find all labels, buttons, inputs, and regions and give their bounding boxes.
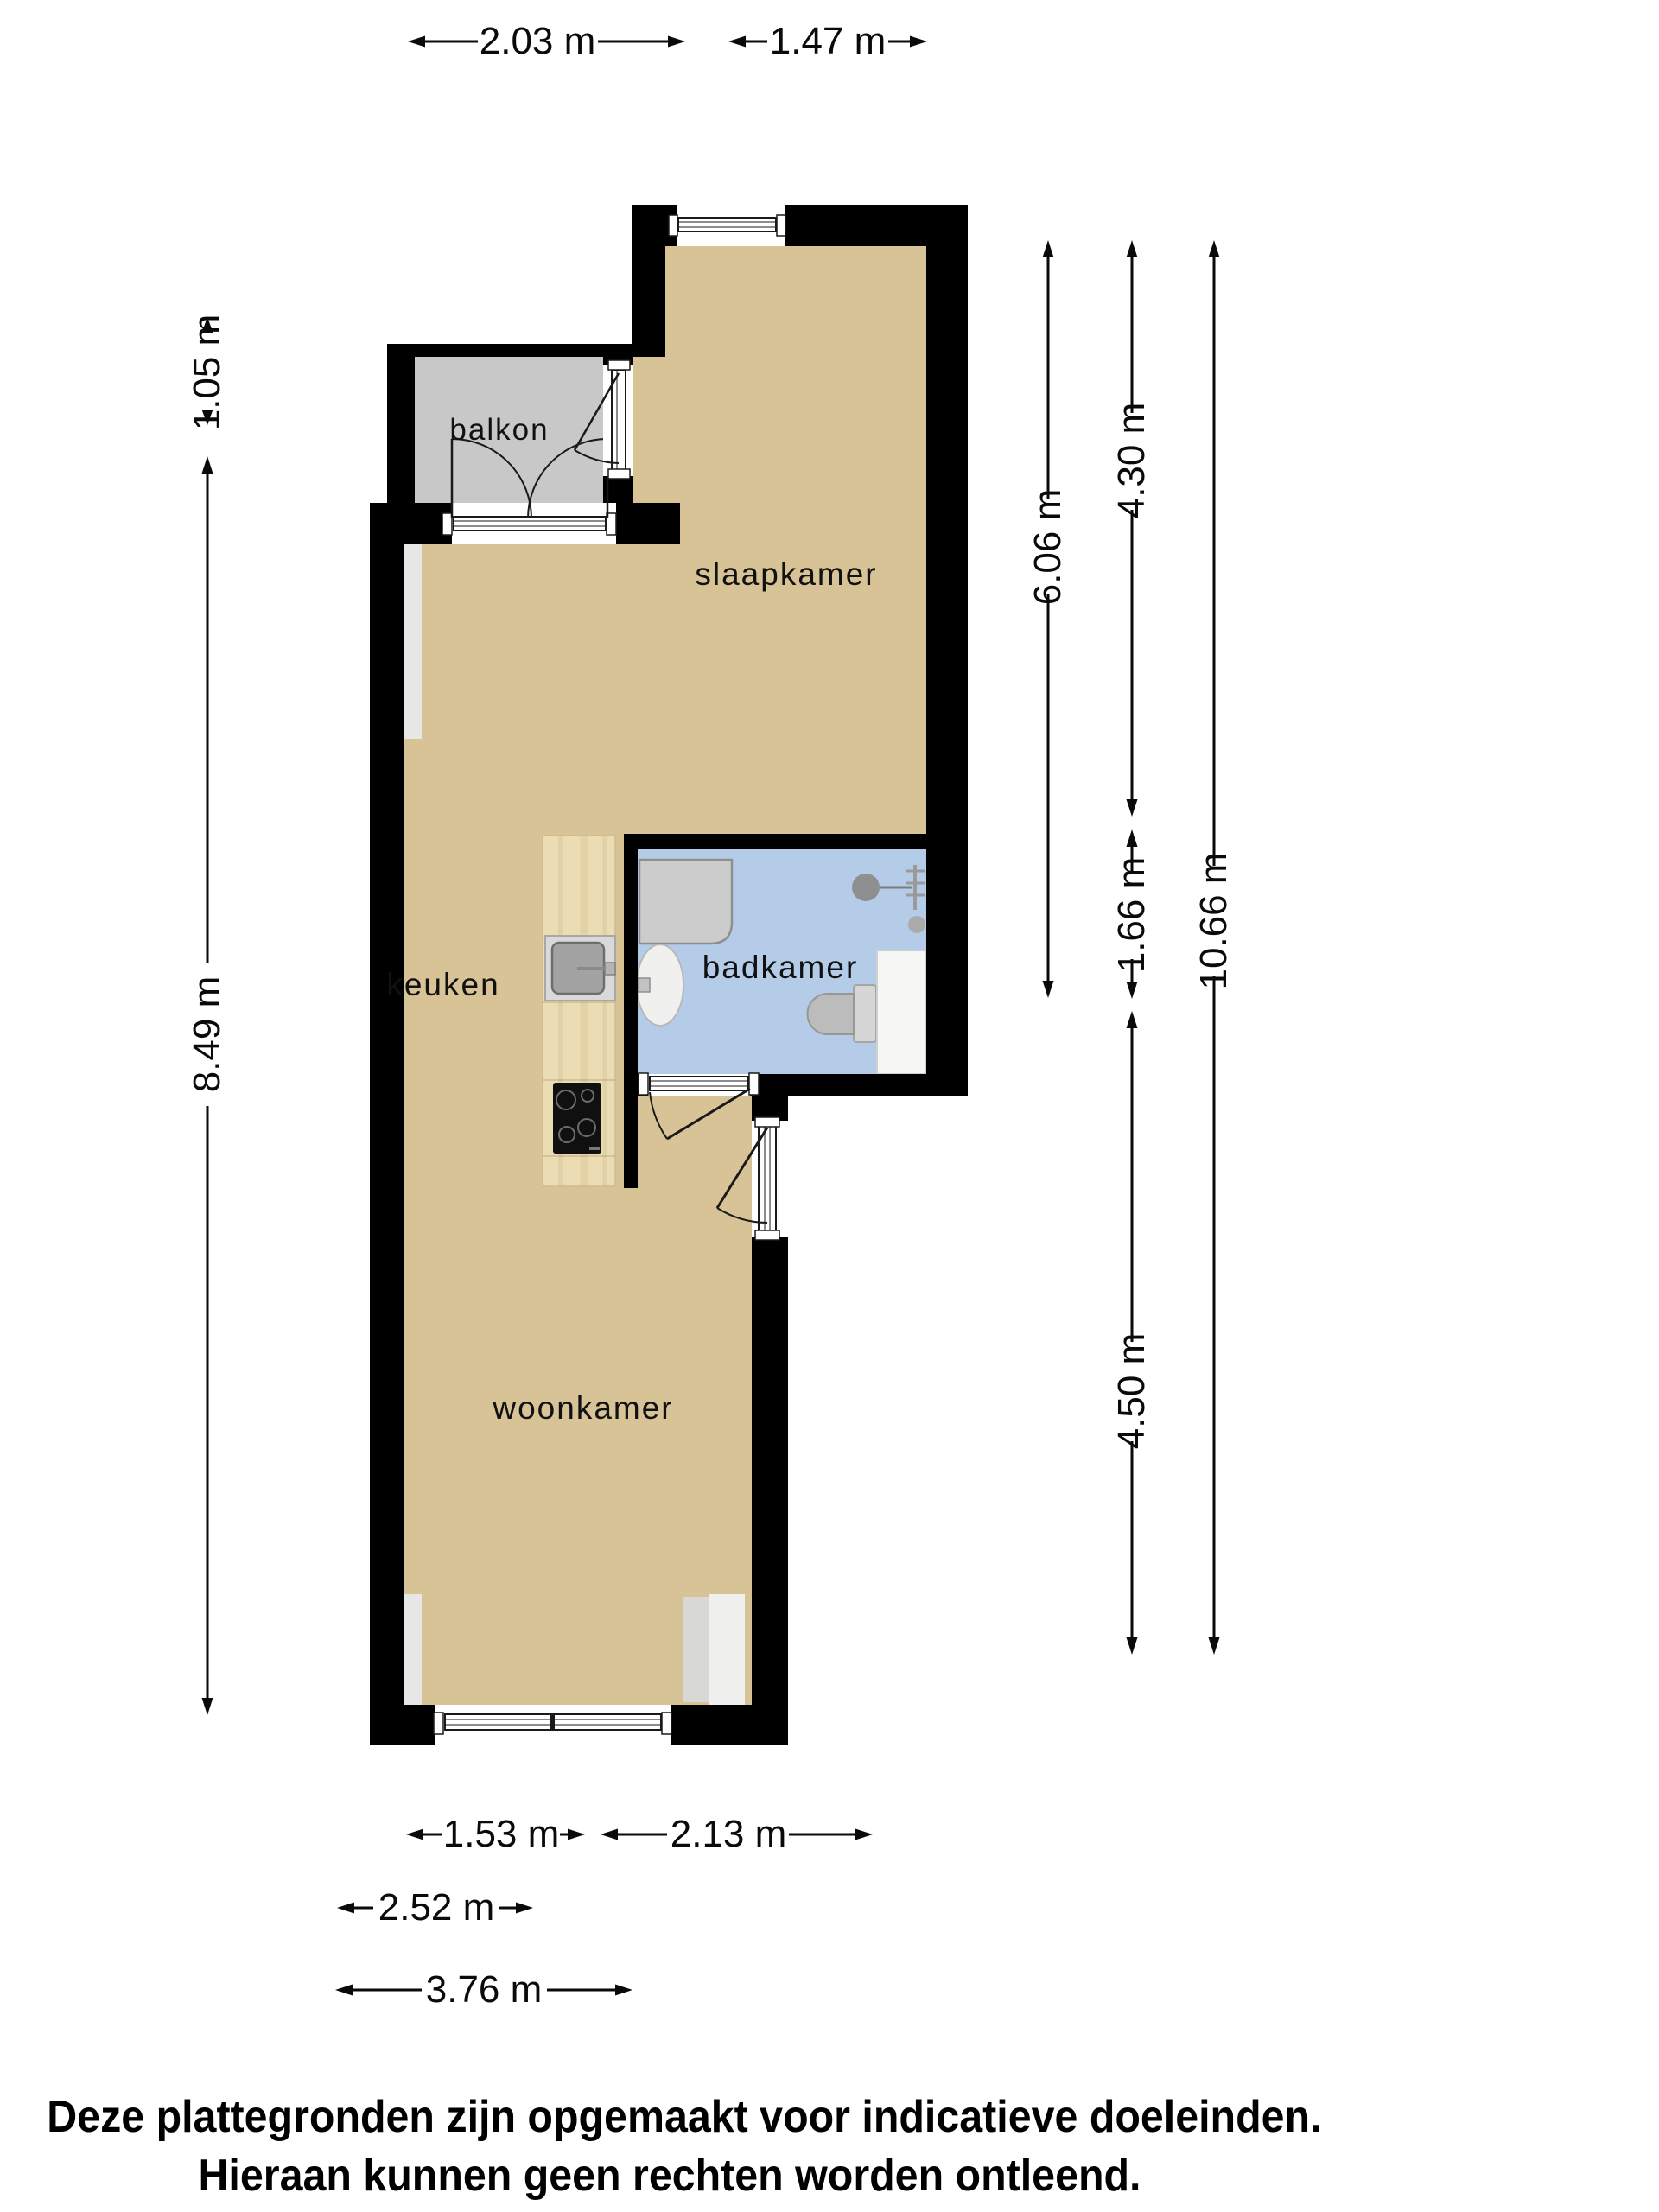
dim-bottom-row1-left: 1.53 m bbox=[443, 1813, 560, 1856]
floorplan-page: balkon slaapkamer keuken badkamer woonka… bbox=[0, 0, 1659, 2212]
window-woonkamer bbox=[434, 1705, 671, 1745]
window-slaapkamer bbox=[669, 205, 785, 246]
dim-right-inner: 6.06 m bbox=[1027, 489, 1070, 606]
kitchen-sink bbox=[545, 936, 615, 1001]
floorplan-drawing bbox=[0, 0, 1659, 2212]
radiator-strip bbox=[683, 1597, 709, 1702]
dim-top-right: 1.47 m bbox=[770, 20, 887, 63]
room-label-balkon: balkon bbox=[449, 413, 549, 448]
bathroom-faucet bbox=[638, 978, 650, 992]
dim-right-mid-lower: 4.50 m bbox=[1110, 1333, 1154, 1450]
room-label-slaapkamer: slaapkamer bbox=[695, 556, 877, 593]
shower bbox=[639, 860, 732, 944]
dim-top-left: 2.03 m bbox=[480, 20, 596, 63]
dim-bottom-row1-right: 2.13 m bbox=[671, 1813, 787, 1856]
cooktop bbox=[553, 1083, 601, 1154]
dim-left-upper: 1.05 m bbox=[186, 315, 229, 431]
bathtub bbox=[877, 950, 926, 1074]
disclaimer-line-1: Deze plattegronden zijn opgemaakt voor i… bbox=[47, 2091, 1293, 2143]
room-label-woonkamer: woonkamer bbox=[493, 1390, 673, 1427]
room-label-keuken: keuken bbox=[386, 967, 499, 1003]
recess-left-upper bbox=[404, 544, 422, 739]
dim-right-mid-small: 1.66 m bbox=[1110, 857, 1154, 974]
recess-right-lower bbox=[709, 1594, 745, 1705]
dim-left-lower: 8.49 m bbox=[186, 976, 229, 1093]
dim-bottom-row2: 2.52 m bbox=[378, 1886, 495, 1929]
recess-left-lower bbox=[404, 1594, 422, 1705]
disclaimer-line-2: Hieraan kunnen geen rechten worden ontle… bbox=[47, 2150, 1293, 2202]
dim-right-outer: 10.66 m bbox=[1192, 853, 1236, 990]
bathroom-sink bbox=[637, 944, 683, 1026]
dim-right-mid-upper: 4.30 m bbox=[1110, 403, 1154, 519]
room-label-badkamer: badkamer bbox=[702, 950, 859, 986]
dim-bottom-row3: 3.76 m bbox=[426, 1968, 543, 2012]
